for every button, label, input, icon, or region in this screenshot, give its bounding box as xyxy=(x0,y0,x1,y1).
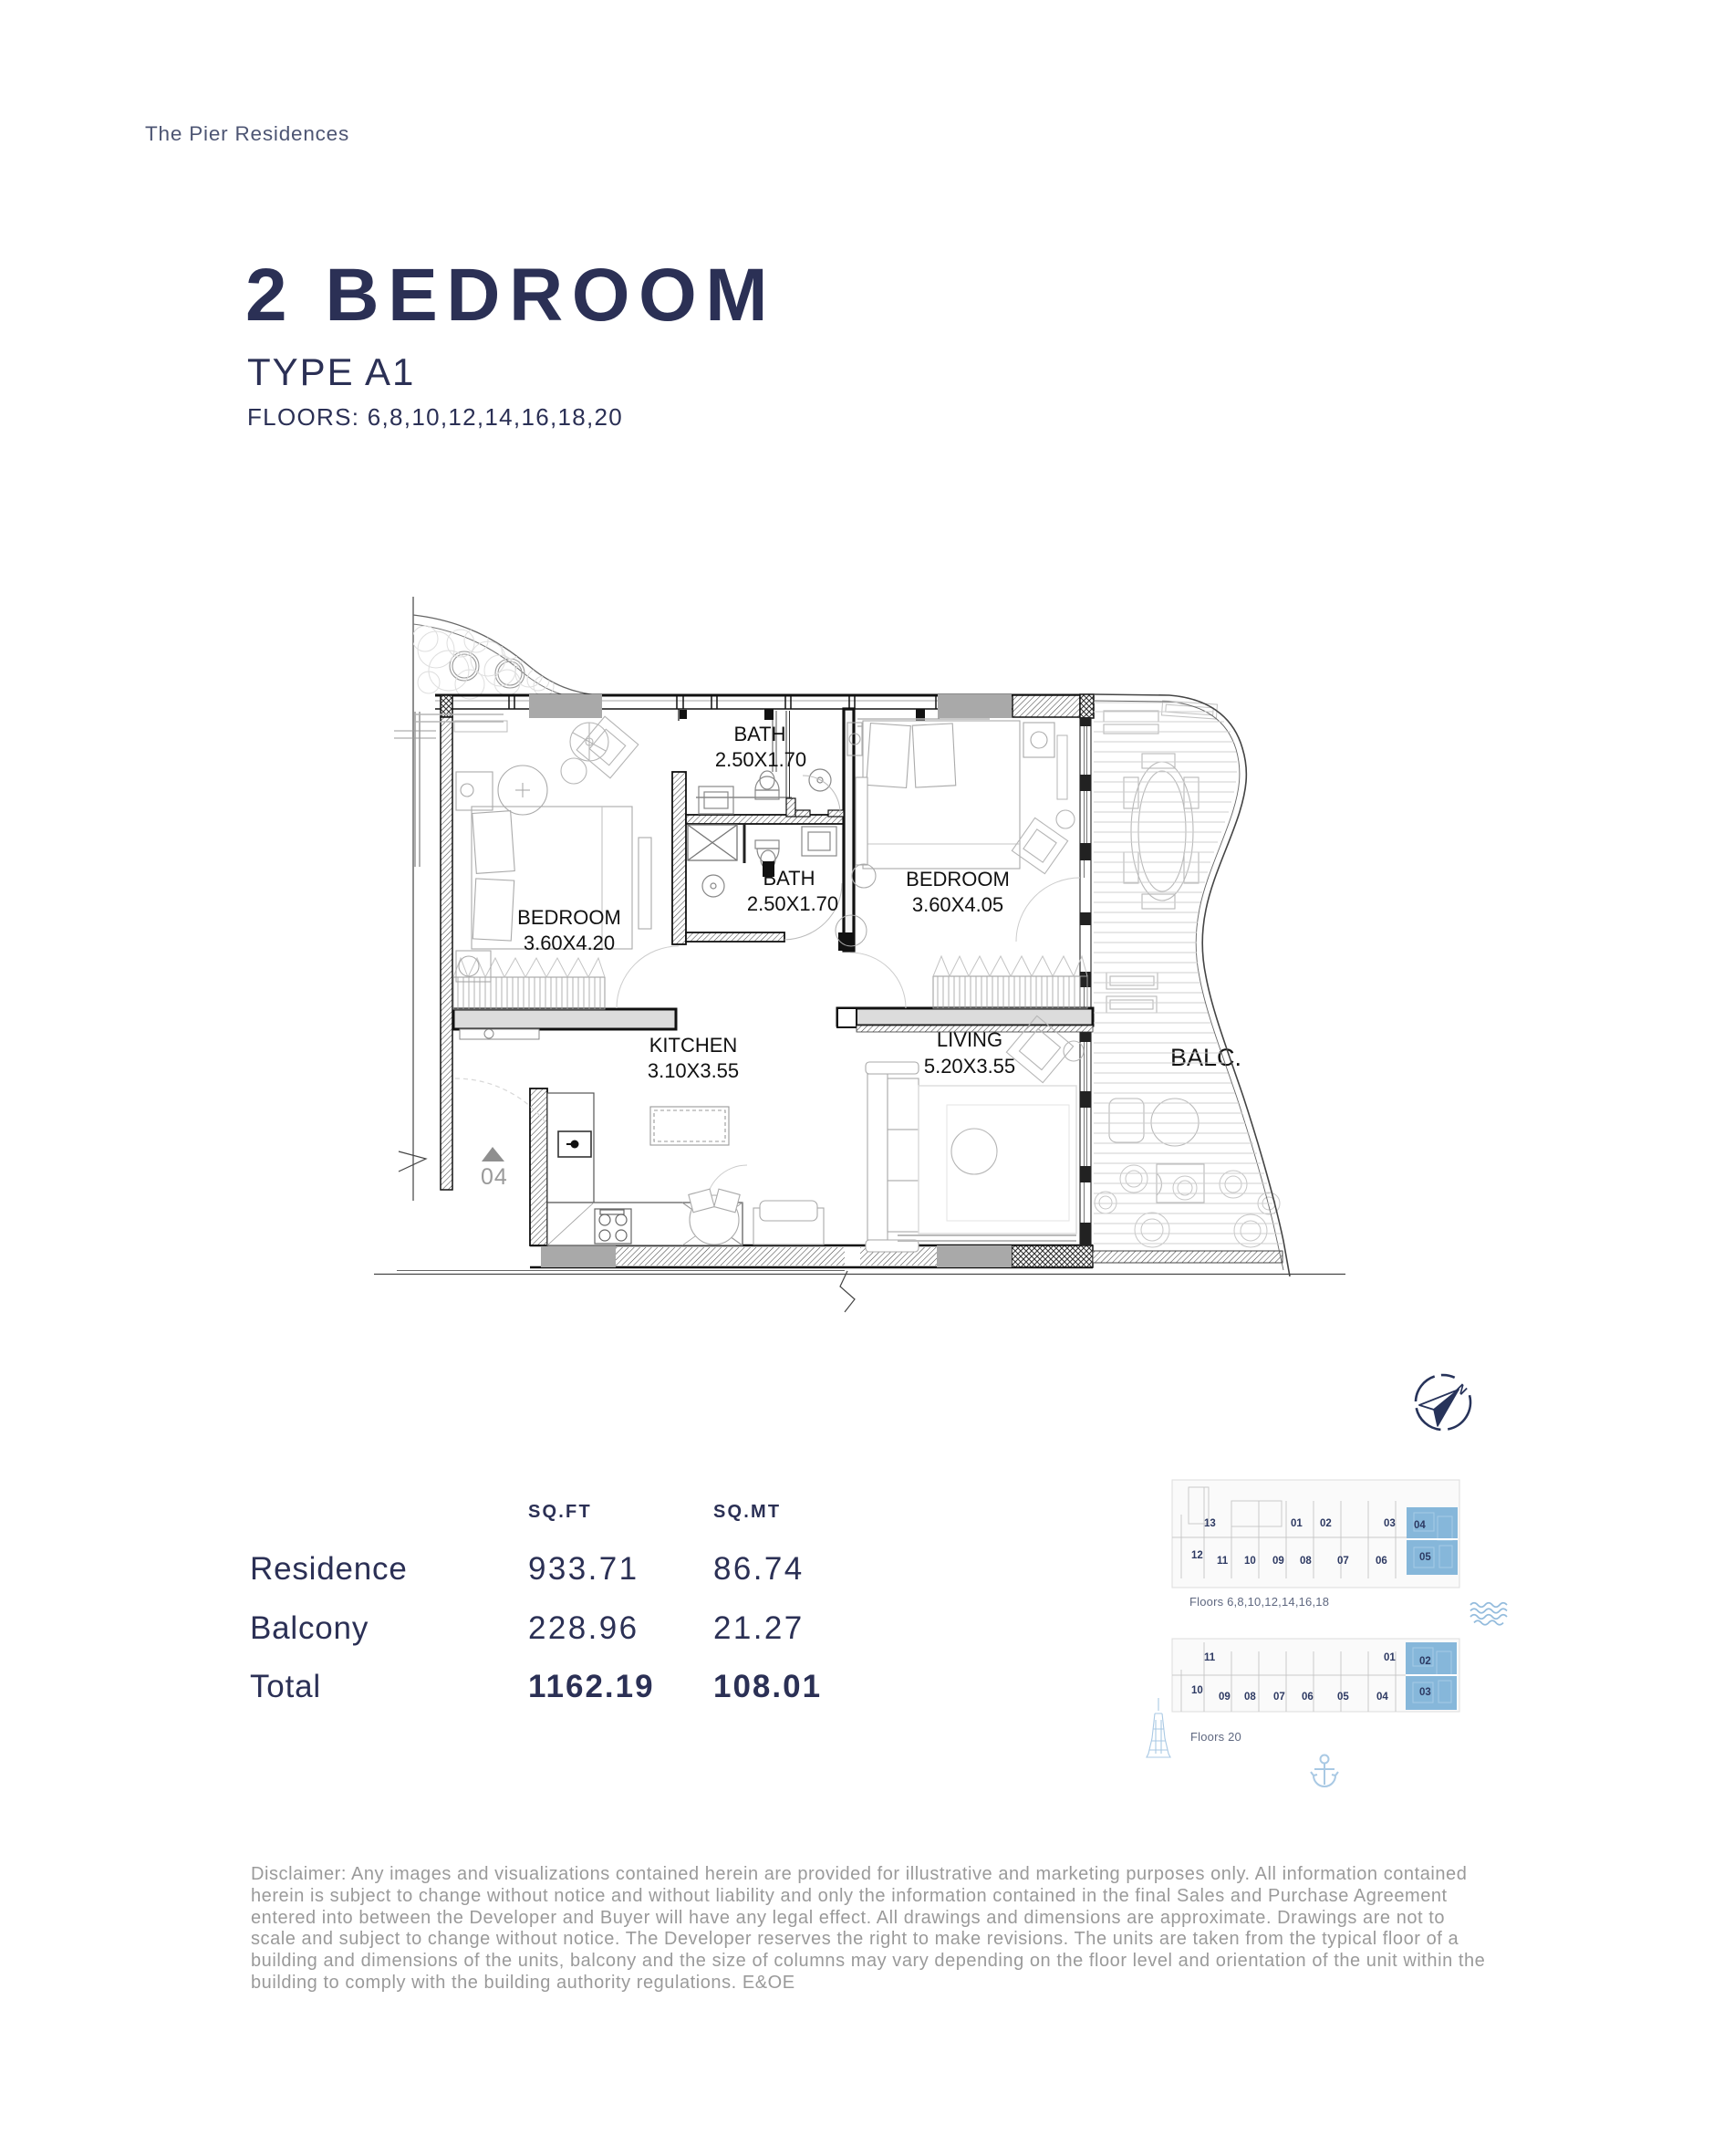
svg-text:BEDROOM: BEDROOM xyxy=(517,906,621,929)
svg-text:05: 05 xyxy=(1337,1692,1349,1703)
svg-text:Floors 6,8,10,12,14,16,18: Floors 6,8,10,12,14,16,18 xyxy=(1189,1595,1329,1609)
svg-text:07: 07 xyxy=(1273,1692,1285,1703)
svg-text:2.50X1.70: 2.50X1.70 xyxy=(715,748,806,771)
svg-text:LIVING: LIVING xyxy=(937,1028,1002,1051)
svg-text:06: 06 xyxy=(1302,1692,1314,1703)
svg-text:5.20X3.55: 5.20X3.55 xyxy=(924,1055,1015,1078)
svg-text:KITCHEN: KITCHEN xyxy=(649,1034,738,1057)
svg-text:04: 04 xyxy=(1414,1520,1426,1531)
svg-text:03: 03 xyxy=(1419,1687,1431,1698)
svg-text:12: 12 xyxy=(1191,1550,1203,1561)
svg-text:3.60X4.05: 3.60X4.05 xyxy=(912,893,1003,916)
svg-text:BEDROOM: BEDROOM xyxy=(906,868,1010,891)
svg-text:09: 09 xyxy=(1272,1556,1284,1567)
svg-text:01: 01 xyxy=(1291,1518,1303,1529)
svg-text:05: 05 xyxy=(1419,1552,1431,1563)
svg-text:01: 01 xyxy=(1384,1652,1396,1663)
svg-text:3.60X4.20: 3.60X4.20 xyxy=(524,932,615,954)
svg-text:BATH: BATH xyxy=(763,867,815,890)
svg-text:08: 08 xyxy=(1300,1556,1312,1567)
svg-text:11: 11 xyxy=(1217,1556,1229,1567)
svg-text:13: 13 xyxy=(1204,1518,1216,1529)
svg-text:10: 10 xyxy=(1191,1685,1203,1696)
svg-text:02: 02 xyxy=(1419,1656,1431,1667)
svg-text:08: 08 xyxy=(1244,1692,1256,1703)
svg-text:Floors 20: Floors 20 xyxy=(1190,1730,1241,1744)
svg-text:03: 03 xyxy=(1384,1518,1396,1529)
svg-text:10: 10 xyxy=(1244,1556,1256,1567)
svg-text:04: 04 xyxy=(1376,1692,1388,1703)
svg-text:04: 04 xyxy=(481,1164,508,1190)
svg-text:2.50X1.70: 2.50X1.70 xyxy=(747,892,838,915)
svg-text:02: 02 xyxy=(1320,1518,1332,1529)
svg-text:BALC.: BALC. xyxy=(1170,1044,1241,1071)
svg-text:3.10X3.55: 3.10X3.55 xyxy=(648,1059,739,1082)
svg-text:09: 09 xyxy=(1219,1692,1231,1703)
svg-text:11: 11 xyxy=(1204,1652,1216,1663)
svg-text:06: 06 xyxy=(1376,1556,1387,1567)
svg-text:BATH: BATH xyxy=(733,723,785,745)
svg-text:07: 07 xyxy=(1337,1556,1349,1567)
